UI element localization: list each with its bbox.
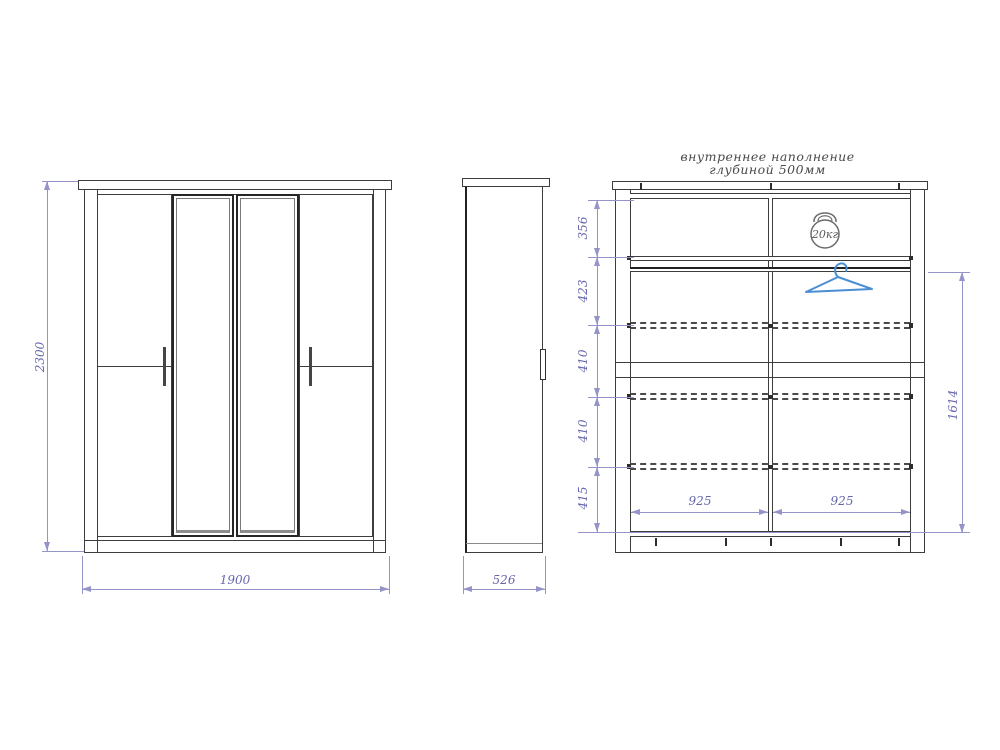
arrow-down-icon — [959, 524, 965, 533]
cap-fastener-tick — [898, 183, 900, 190]
arrow-down-icon — [594, 458, 600, 467]
arrow-up-icon — [594, 325, 600, 334]
front-mirror-door-1 — [172, 194, 234, 537]
cap-fastener-tick — [770, 183, 772, 190]
dimension-line — [82, 589, 389, 590]
plinth-fastener-tick — [655, 538, 657, 546]
wall-fastener-mark — [909, 464, 913, 469]
clothes-hanger-icon — [800, 260, 878, 298]
arrow-up-icon — [594, 397, 600, 406]
arrow-up-icon — [594, 200, 600, 209]
plinth-fastener-tick — [725, 538, 727, 546]
section-dimension-label: 415 — [576, 476, 590, 520]
wall-fastener-mark — [909, 394, 913, 399]
arrow-up-icon — [594, 467, 600, 476]
front-door-handle-right — [309, 347, 312, 386]
title-line-2: глубиной 500мм — [630, 163, 905, 176]
front-door-handle-left — [163, 347, 166, 386]
max-load-label: 20кг — [811, 228, 839, 241]
arrow-down-icon — [594, 388, 600, 397]
internal-center-divider — [768, 198, 773, 531]
section-dimension-label: 410 — [576, 339, 590, 383]
plinth-fastener-tick — [898, 538, 900, 546]
width-dimension-label: 1900 — [205, 573, 265, 587]
divider-fastener-mark — [768, 395, 773, 399]
drawing-title: внутреннее наполнение глубиной 500мм — [630, 150, 905, 176]
wardrobe-technical-drawing: 20кг внутреннее наполнение глубиной 500м… — [0, 0, 1000, 750]
arrow-down-icon — [594, 248, 600, 257]
height-dimension-label: 2300 — [33, 327, 47, 387]
hanging-height-label: 1614 — [946, 383, 960, 427]
divider-fastener-mark — [768, 465, 773, 469]
arrow-down-icon — [594, 316, 600, 325]
arrow-left-icon — [773, 509, 782, 515]
dimension-line — [773, 512, 910, 513]
arrow-left-icon — [82, 586, 91, 592]
section-dimension-label: 410 — [576, 409, 590, 453]
front-plinth-line — [85, 540, 385, 541]
extension-line — [389, 556, 390, 594]
arrow-right-icon — [901, 509, 910, 515]
front-mirror-door-2 — [236, 194, 299, 537]
arrow-up-icon — [594, 257, 600, 266]
side-plinth-line — [466, 543, 542, 544]
front-stile-right — [373, 190, 374, 552]
plinth-fastener-tick — [770, 538, 772, 546]
cap-fastener-tick — [640, 183, 642, 190]
arrow-up-icon — [959, 272, 965, 281]
dimension-line — [47, 181, 48, 551]
arrow-right-icon — [380, 586, 389, 592]
internal-frame-rail-upper — [615, 362, 925, 363]
dimension-line — [631, 512, 768, 513]
arrow-right-icon — [536, 586, 545, 592]
section-dimension-label: 423 — [576, 269, 590, 313]
internal-right-wall — [910, 190, 911, 552]
depth-dimension-label: 526 — [474, 573, 534, 587]
arrow-down-icon — [44, 542, 50, 551]
inner-width-label: 925 — [812, 494, 872, 508]
wall-fastener-mark — [909, 256, 913, 260]
extension-line — [42, 551, 84, 552]
front-door-left-midrail — [98, 366, 171, 367]
arrow-down-icon — [594, 523, 600, 532]
arrow-up-icon — [44, 181, 50, 190]
plinth-fastener-tick — [840, 538, 842, 546]
wall-fastener-mark — [909, 323, 913, 328]
arrow-left-icon — [631, 509, 640, 515]
kettlebell-20kg-icon: 20кг — [803, 204, 847, 252]
side-body — [465, 186, 543, 553]
mirror-pane-2 — [240, 198, 295, 533]
dimension-line — [962, 272, 963, 533]
extension-line — [545, 556, 546, 594]
arrow-left-icon — [463, 586, 472, 592]
extension-line-bottom — [578, 532, 970, 533]
dimension-line — [463, 589, 545, 590]
side-door-handle — [540, 349, 546, 380]
section-dimension-label: 356 — [576, 206, 590, 250]
internal-left-wall — [630, 190, 631, 552]
mirror-pane-1 — [176, 198, 230, 533]
arrow-right-icon — [759, 509, 768, 515]
divider-fastener-mark — [768, 324, 773, 328]
internal-frame-rail-lower — [615, 377, 925, 378]
inner-width-label: 925 — [670, 494, 730, 508]
